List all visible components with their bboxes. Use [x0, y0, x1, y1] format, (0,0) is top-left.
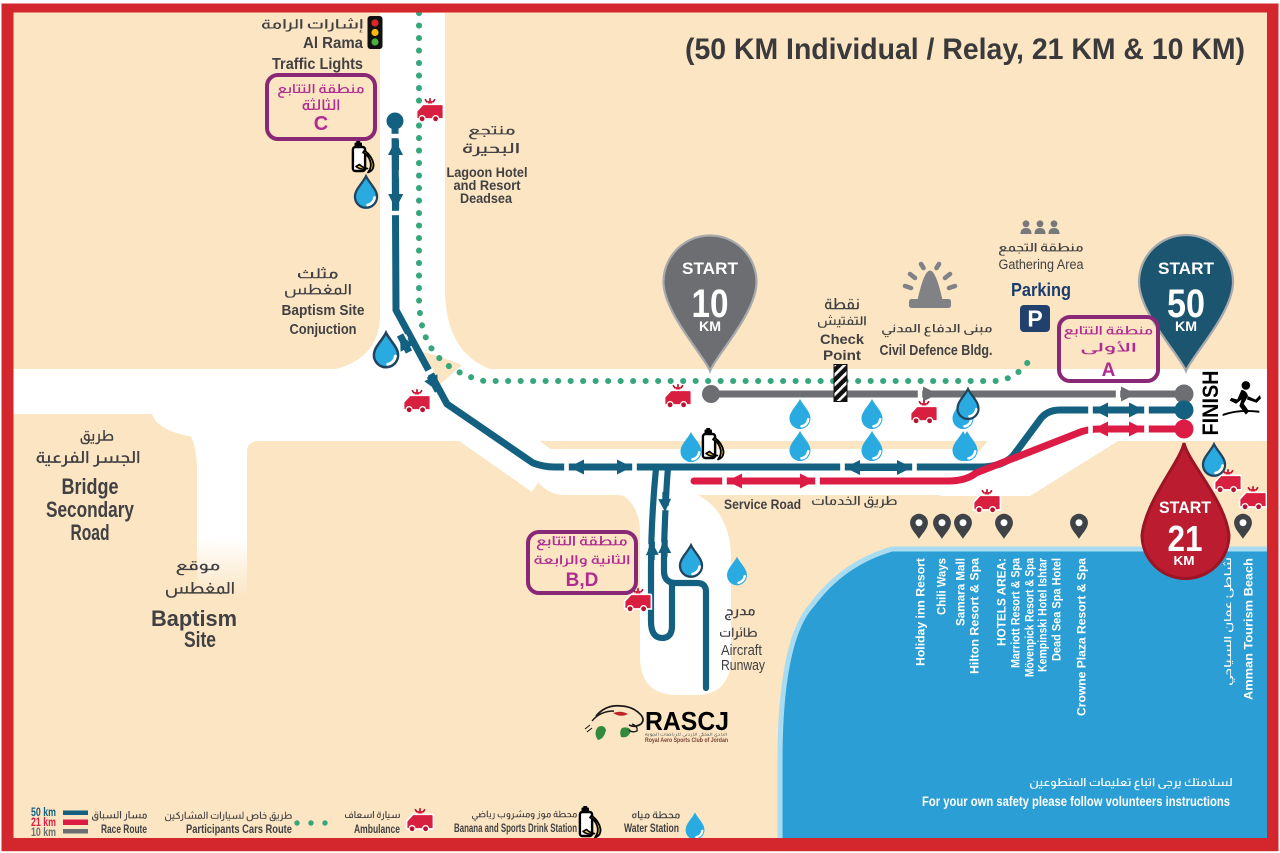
svg-text:Deadsea: Deadsea	[460, 191, 512, 206]
svg-text:10 km: 10 km	[31, 827, 56, 839]
svg-text:Runway: Runway	[721, 658, 766, 674]
svg-text:Royal Aero Sports Club of Jord: Royal Aero Sports Club of Jordan	[645, 737, 728, 744]
svg-text:Conjuction: Conjuction	[290, 322, 357, 338]
svg-text:Amman Tourism Beach: Amman Tourism Beach	[1242, 558, 1256, 700]
svg-text:Holiday inn Resort: Holiday inn Resort	[914, 558, 928, 666]
svg-text:Kempinski Hotel Ishtar: Kempinski Hotel Ishtar	[1036, 558, 1050, 672]
svg-text:B,D: B,D	[566, 570, 599, 591]
svg-text:(50 KM Individual / Relay, 21: (50 KM Individual / Relay, 21 KM & 10 KM…	[685, 33, 1245, 66]
svg-text:Mövenpick Resort & Spa: Mövenpick Resort & Spa	[1023, 558, 1037, 677]
svg-text:Road: Road	[71, 520, 110, 545]
svg-text:P: P	[1027, 306, 1042, 332]
svg-text:KM: KM	[1174, 553, 1195, 568]
svg-text:START: START	[1158, 259, 1215, 278]
svg-text:Service Road: Service Road	[724, 497, 801, 512]
svg-text:RASCJ: RASCJ	[645, 706, 729, 736]
svg-text:HOTELS AREA:: HOTELS AREA:	[995, 558, 1009, 646]
svg-text:Banana and Sports Drink Statio: Banana and Sports Drink Station	[454, 821, 577, 835]
svg-text:Chili Ways: Chili Ways	[935, 558, 949, 615]
svg-text:Civil Defence Bldg.: Civil Defence Bldg.	[880, 343, 993, 359]
svg-text:Site: Site	[184, 627, 216, 652]
svg-text:Point: Point	[823, 347, 861, 363]
svg-text:Traffic Lights: Traffic Lights	[272, 56, 363, 73]
svg-text:START: START	[1159, 498, 1212, 517]
svg-text:Secondary: Secondary	[46, 497, 135, 522]
svg-text:Participants Cars Route: Participants Cars Route	[186, 822, 292, 836]
svg-text:A: A	[1102, 360, 1116, 381]
svg-text:START: START	[682, 259, 739, 278]
svg-text:Check: Check	[820, 331, 864, 347]
svg-text:Gathering Area: Gathering Area	[999, 257, 1084, 272]
svg-text:FINISH: FINISH	[1198, 371, 1223, 436]
svg-text:Parking: Parking	[1011, 280, 1071, 300]
svg-text:Crowne Plaza Resort & Spa: Crowne Plaza Resort & Spa	[1075, 558, 1089, 716]
svg-text:C: C	[314, 113, 328, 135]
svg-text:Water Station: Water Station	[624, 821, 679, 835]
svg-text:Marriott Resort & Spa: Marriott Resort & Spa	[1009, 558, 1023, 668]
svg-text:Ambulance: Ambulance	[354, 822, 400, 836]
svg-text:KM: KM	[1175, 319, 1197, 334]
svg-text:Aircraft: Aircraft	[721, 643, 762, 659]
svg-text:Dead Sea Spa Hotel: Dead Sea Spa Hotel	[1050, 558, 1064, 661]
svg-text:Samara Mall: Samara Mall	[954, 558, 968, 626]
svg-text:Bridge: Bridge	[62, 474, 119, 499]
svg-text:Race Route: Race Route	[101, 822, 147, 836]
svg-text:Al Rama: Al Rama	[303, 35, 363, 52]
svg-text:Hilton Resort & Spa: Hilton Resort & Spa	[968, 558, 982, 674]
svg-text:For your own safety please fol: For your own safety please follow volunt…	[922, 794, 1230, 809]
svg-text:Baptism Site: Baptism Site	[282, 303, 365, 319]
svg-text:KM: KM	[699, 319, 721, 334]
